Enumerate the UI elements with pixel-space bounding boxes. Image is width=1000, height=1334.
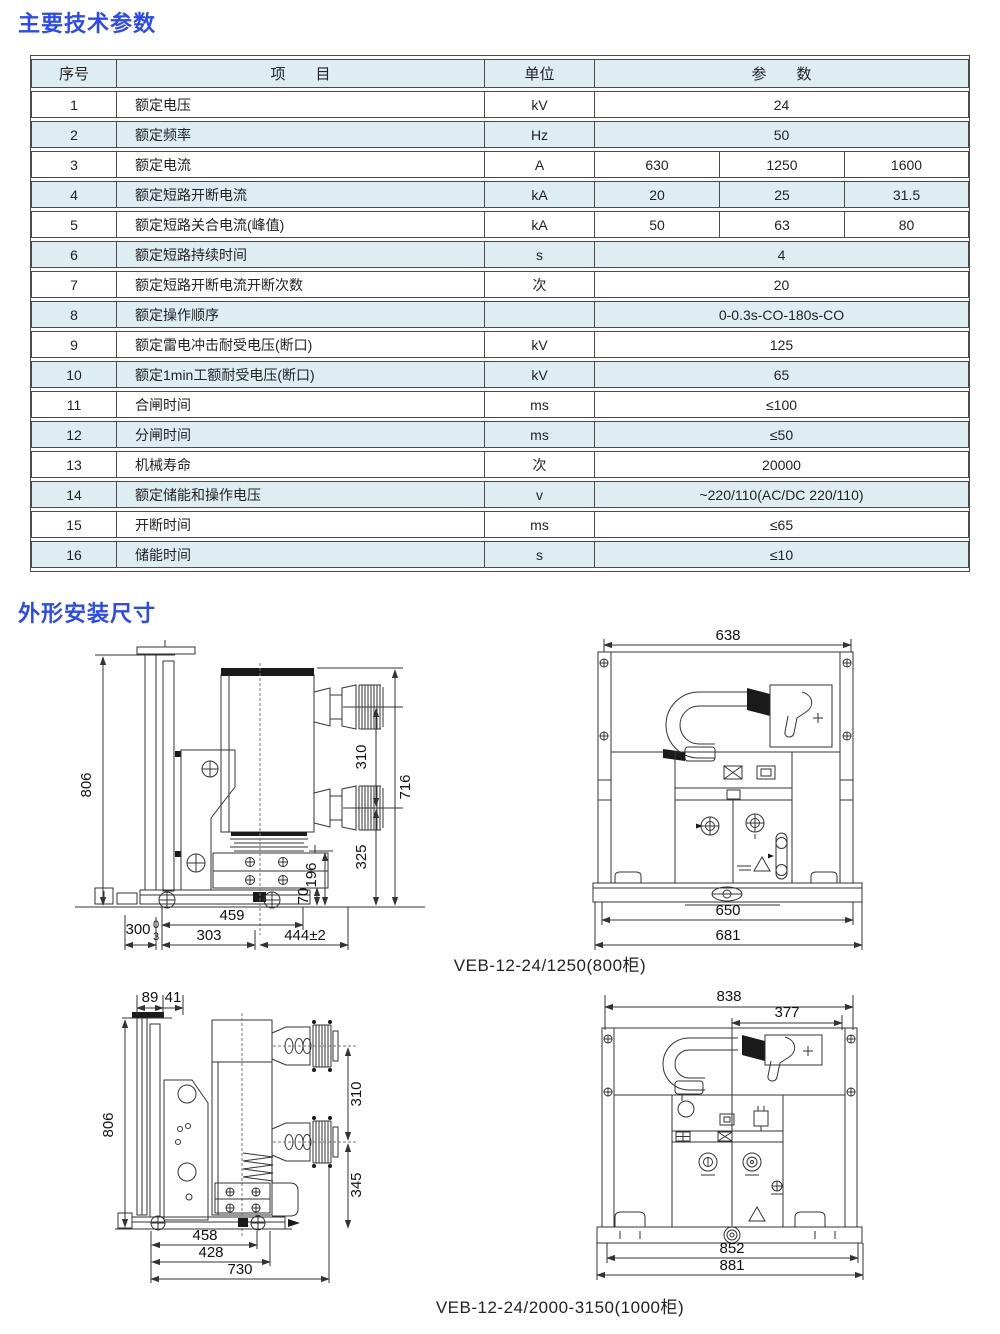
row-no: 14 bbox=[31, 481, 116, 508]
dim-label-638: 638 bbox=[715, 630, 740, 644]
page: 主要技术参数 序号 项 目 单位 参 数 1 额定电压 kV 24 2 额定频率… bbox=[0, 0, 1000, 1334]
row-no: 9 bbox=[31, 331, 116, 358]
row-unit: A bbox=[484, 151, 594, 178]
row-value: 65 bbox=[594, 361, 969, 388]
row-value: 20 bbox=[594, 181, 719, 208]
dim-label-716: 716 bbox=[397, 774, 414, 799]
table-row: 8 额定操作顺序 0-0.3s-CO-180s-CO bbox=[31, 301, 969, 328]
row-item: 分闸时间 bbox=[116, 421, 484, 448]
table-row: 15 开断时间 ms ≤65 bbox=[31, 511, 969, 538]
row-no: 7 bbox=[31, 271, 116, 298]
row-item: 额定短路开断电流 bbox=[116, 181, 484, 208]
dim-label-444: 444±2 bbox=[284, 927, 326, 944]
row-unit: ms bbox=[484, 391, 594, 418]
row-no: 5 bbox=[31, 211, 116, 238]
table-row: 6 额定短路持续时间 s 4 bbox=[31, 241, 969, 268]
row-value: ≤10 bbox=[594, 541, 969, 568]
dim-label-806: 806 bbox=[78, 772, 95, 797]
header-param: 参 数 bbox=[594, 59, 969, 88]
row-unit: ms bbox=[484, 421, 594, 448]
row-unit: v bbox=[484, 481, 594, 508]
row-item: 额定1min工额耐受电压(断口) bbox=[116, 361, 484, 388]
dim-label-300-tol-hi: 0 bbox=[153, 919, 159, 931]
row-no: 15 bbox=[31, 511, 116, 538]
header-unit: 单位 bbox=[484, 59, 594, 88]
table-row: 10 额定1min工额耐受电压(断口) kV 65 bbox=[31, 361, 969, 388]
table-row: 13 机械寿命 次 20000 bbox=[31, 451, 969, 478]
dim-label-70: 70 bbox=[295, 888, 312, 905]
drawing-caption-800: VEB-12-24/1250(800柜) bbox=[300, 951, 800, 976]
row-no: 2 bbox=[31, 121, 116, 148]
drawing-side-view-800: 806 716 310 325 196 70 459 303 bbox=[25, 635, 465, 965]
section-title-dimensions: 外形安装尺寸 bbox=[18, 596, 156, 628]
row-unit: Hz bbox=[484, 121, 594, 148]
row-value: 630 bbox=[594, 151, 719, 178]
dim-label-806b: 806 bbox=[100, 1112, 117, 1137]
table-row: 9 额定雷电冲击耐受电压(断口) kV 125 bbox=[31, 331, 969, 358]
table-row: 3 额定电流 A 630 1250 1600 bbox=[31, 151, 969, 178]
dim-label-300: 300 bbox=[125, 921, 150, 938]
dim-label-310: 310 bbox=[353, 744, 370, 769]
row-unit: 次 bbox=[484, 451, 594, 478]
row-value: 80 bbox=[844, 211, 969, 238]
row-unit: s bbox=[484, 541, 594, 568]
row-value: 125 bbox=[594, 331, 969, 358]
row-unit: kA bbox=[484, 181, 594, 208]
dim-label-650: 650 bbox=[715, 902, 740, 919]
row-no: 1 bbox=[31, 91, 116, 118]
row-value: 20000 bbox=[594, 451, 969, 478]
drawing-side-view-1000: 89 41 806 310 345 458 428 730 bbox=[60, 985, 480, 1305]
table-row: 1 额定电压 kV 24 bbox=[31, 91, 969, 118]
row-value: ~220/110(AC/DC 220/110) bbox=[594, 481, 969, 508]
row-unit bbox=[484, 301, 594, 328]
row-no: 12 bbox=[31, 421, 116, 448]
row-unit: 次 bbox=[484, 271, 594, 298]
row-value: ≤65 bbox=[594, 511, 969, 538]
row-value: 63 bbox=[719, 211, 844, 238]
dim-label-428: 428 bbox=[198, 1244, 223, 1261]
row-no: 6 bbox=[31, 241, 116, 268]
table-row: 2 额定频率 Hz 50 bbox=[31, 121, 969, 148]
dim-label-852: 852 bbox=[719, 1240, 744, 1257]
row-no: 13 bbox=[31, 451, 116, 478]
spec-table: 序号 项 目 单位 参 数 1 额定电压 kV 24 2 额定频率 Hz 50 … bbox=[31, 56, 969, 571]
table-row: 16 储能时间 s ≤10 bbox=[31, 541, 969, 568]
row-unit: kV bbox=[484, 91, 594, 118]
row-no: 4 bbox=[31, 181, 116, 208]
dim-label-303: 303 bbox=[196, 927, 221, 944]
row-no: 10 bbox=[31, 361, 116, 388]
row-item: 额定短路关合电流(峰值) bbox=[116, 211, 484, 238]
breaker-side-structure bbox=[75, 640, 425, 935]
row-value: 1250 bbox=[719, 151, 844, 178]
table-row: 11 合闸时间 ms ≤100 bbox=[31, 391, 969, 418]
row-item: 额定雷电冲击耐受电压(断口) bbox=[116, 331, 484, 358]
row-item: 机械寿命 bbox=[116, 451, 484, 478]
row-value: ≤100 bbox=[594, 391, 969, 418]
row-item: 额定操作顺序 bbox=[116, 301, 484, 328]
section-title-parameters: 主要技术参数 bbox=[18, 6, 156, 38]
dim-label-681: 681 bbox=[715, 927, 740, 944]
dim-label-730: 730 bbox=[227, 1261, 252, 1278]
row-unit: ms bbox=[484, 511, 594, 538]
dim-label-41: 41 bbox=[165, 989, 182, 1006]
table-row: 5 额定短路关合电流(峰值) kA 50 63 80 bbox=[31, 211, 969, 238]
table-header-row: 序号 项 目 单位 参 数 bbox=[31, 59, 969, 88]
row-unit: kV bbox=[484, 331, 594, 358]
row-value: 1600 bbox=[844, 151, 969, 178]
dim-label-196: 196 bbox=[303, 862, 320, 887]
row-value: 25 bbox=[719, 181, 844, 208]
row-value: 20 bbox=[594, 271, 969, 298]
side-800-dimensions: 806 716 310 325 196 70 459 303 bbox=[78, 655, 414, 950]
table-row: 14 额定储能和操作电压 v ~220/110(AC/DC 220/110) bbox=[31, 481, 969, 508]
row-unit: s bbox=[484, 241, 594, 268]
row-unit: kV bbox=[484, 361, 594, 388]
drawing-front-view-800: 638 650 681 bbox=[565, 630, 1000, 960]
row-item: 额定短路持续时间 bbox=[116, 241, 484, 268]
drawing-caption-1000: VEB-12-24/2000-3150(1000柜) bbox=[300, 1293, 820, 1318]
table-row: 7 额定短路开断电流开断次数 次 20 bbox=[31, 271, 969, 298]
row-unit: kA bbox=[484, 211, 594, 238]
dim-label-838: 838 bbox=[716, 988, 741, 1005]
row-no: 3 bbox=[31, 151, 116, 178]
row-value: ≤50 bbox=[594, 421, 969, 448]
table-row: 12 分闸时间 ms ≤50 bbox=[31, 421, 969, 448]
row-item: 额定储能和操作电压 bbox=[116, 481, 484, 508]
row-item: 储能时间 bbox=[116, 541, 484, 568]
row-item: 合闸时间 bbox=[116, 391, 484, 418]
row-item: 额定电流 bbox=[116, 151, 484, 178]
row-value: 31.5 bbox=[844, 181, 969, 208]
dim-label-458: 458 bbox=[192, 1227, 217, 1244]
spec-table-wrapper: 序号 项 目 单位 参 数 1 额定电压 kV 24 2 额定频率 Hz 50 … bbox=[30, 55, 970, 572]
dim-label-377: 377 bbox=[774, 1004, 799, 1021]
row-value: 4 bbox=[594, 241, 969, 268]
row-item: 开断时间 bbox=[116, 511, 484, 538]
breaker-front-structure bbox=[593, 652, 862, 905]
header-no: 序号 bbox=[31, 59, 116, 88]
dim-label-325: 325 bbox=[353, 844, 370, 869]
dim-label-345: 345 bbox=[348, 1172, 365, 1197]
row-item: 额定电压 bbox=[116, 91, 484, 118]
dim-label-89: 89 bbox=[142, 989, 159, 1006]
row-item: 额定频率 bbox=[116, 121, 484, 148]
dim-label-300-tol-lo: 3 bbox=[153, 931, 159, 943]
row-value: 50 bbox=[594, 211, 719, 238]
row-no: 11 bbox=[31, 391, 116, 418]
row-value: 24 bbox=[594, 91, 969, 118]
breaker-front-structure-1000 bbox=[597, 1018, 862, 1243]
row-item: 额定短路开断电流开断次数 bbox=[116, 271, 484, 298]
header-item: 项 目 bbox=[116, 59, 484, 88]
row-value: 50 bbox=[594, 121, 969, 148]
drawing-front-view-1000: 838 377 852 881 bbox=[560, 985, 1000, 1305]
dim-label-459: 459 bbox=[219, 907, 244, 924]
dim-label-310b: 310 bbox=[348, 1081, 365, 1106]
row-no: 16 bbox=[31, 541, 116, 568]
dim-label-881: 881 bbox=[719, 1257, 744, 1274]
row-value: 0-0.3s-CO-180s-CO bbox=[594, 301, 969, 328]
table-row: 4 额定短路开断电流 kA 20 25 31.5 bbox=[31, 181, 969, 208]
row-no: 8 bbox=[31, 301, 116, 328]
